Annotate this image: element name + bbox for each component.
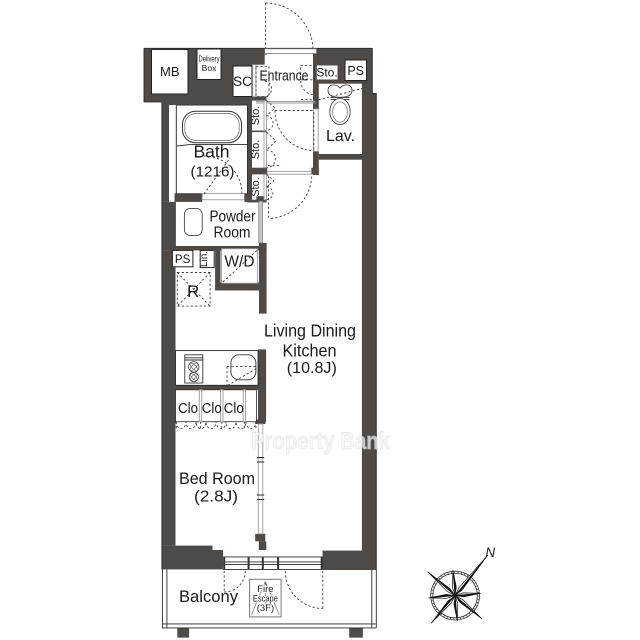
- svg-text:N: N: [485, 545, 495, 560]
- svg-text:Box: Box: [202, 63, 217, 73]
- svg-text:Living Dining: Living Dining: [264, 321, 356, 341]
- svg-text:Sto.: Sto.: [250, 106, 262, 126]
- svg-text:(1216): (1216): [191, 164, 235, 181]
- svg-text:Bath: Bath: [194, 142, 230, 162]
- svg-text:MB: MB: [160, 64, 180, 79]
- svg-text:Kitchen: Kitchen: [283, 341, 337, 361]
- svg-text:Sto.: Sto.: [250, 140, 262, 160]
- svg-text:PS: PS: [175, 254, 191, 266]
- svg-text:Room: Room: [214, 225, 251, 242]
- svg-text:R: R: [187, 282, 199, 301]
- svg-text:Clo: Clo: [202, 401, 222, 417]
- svg-text:Lin.: Lin.: [199, 251, 210, 267]
- svg-text:Balcony: Balcony: [179, 588, 239, 606]
- svg-text:Clo: Clo: [224, 401, 244, 417]
- svg-text:Bed Room: Bed Room: [179, 469, 255, 488]
- svg-text:PS: PS: [347, 64, 364, 78]
- svg-text:SC: SC: [233, 74, 252, 89]
- svg-text:Lav.: Lav.: [326, 128, 355, 145]
- svg-text:(10.8J): (10.8J): [287, 360, 337, 377]
- svg-text:(3F): (3F): [257, 603, 274, 614]
- svg-text:W/D: W/D: [224, 253, 254, 270]
- svg-text:Sto.: Sto.: [316, 66, 337, 80]
- svg-text:Entrance: Entrance: [260, 68, 309, 85]
- svg-text:Sto.: Sto.: [250, 177, 262, 197]
- svg-text:(2.8J): (2.8J): [194, 489, 238, 506]
- svg-text:Delivery: Delivery: [199, 54, 221, 64]
- svg-text:Powder: Powder: [210, 209, 256, 226]
- svg-text:Property Bank: Property Bank: [251, 428, 391, 455]
- svg-text:Clo: Clo: [178, 401, 198, 417]
